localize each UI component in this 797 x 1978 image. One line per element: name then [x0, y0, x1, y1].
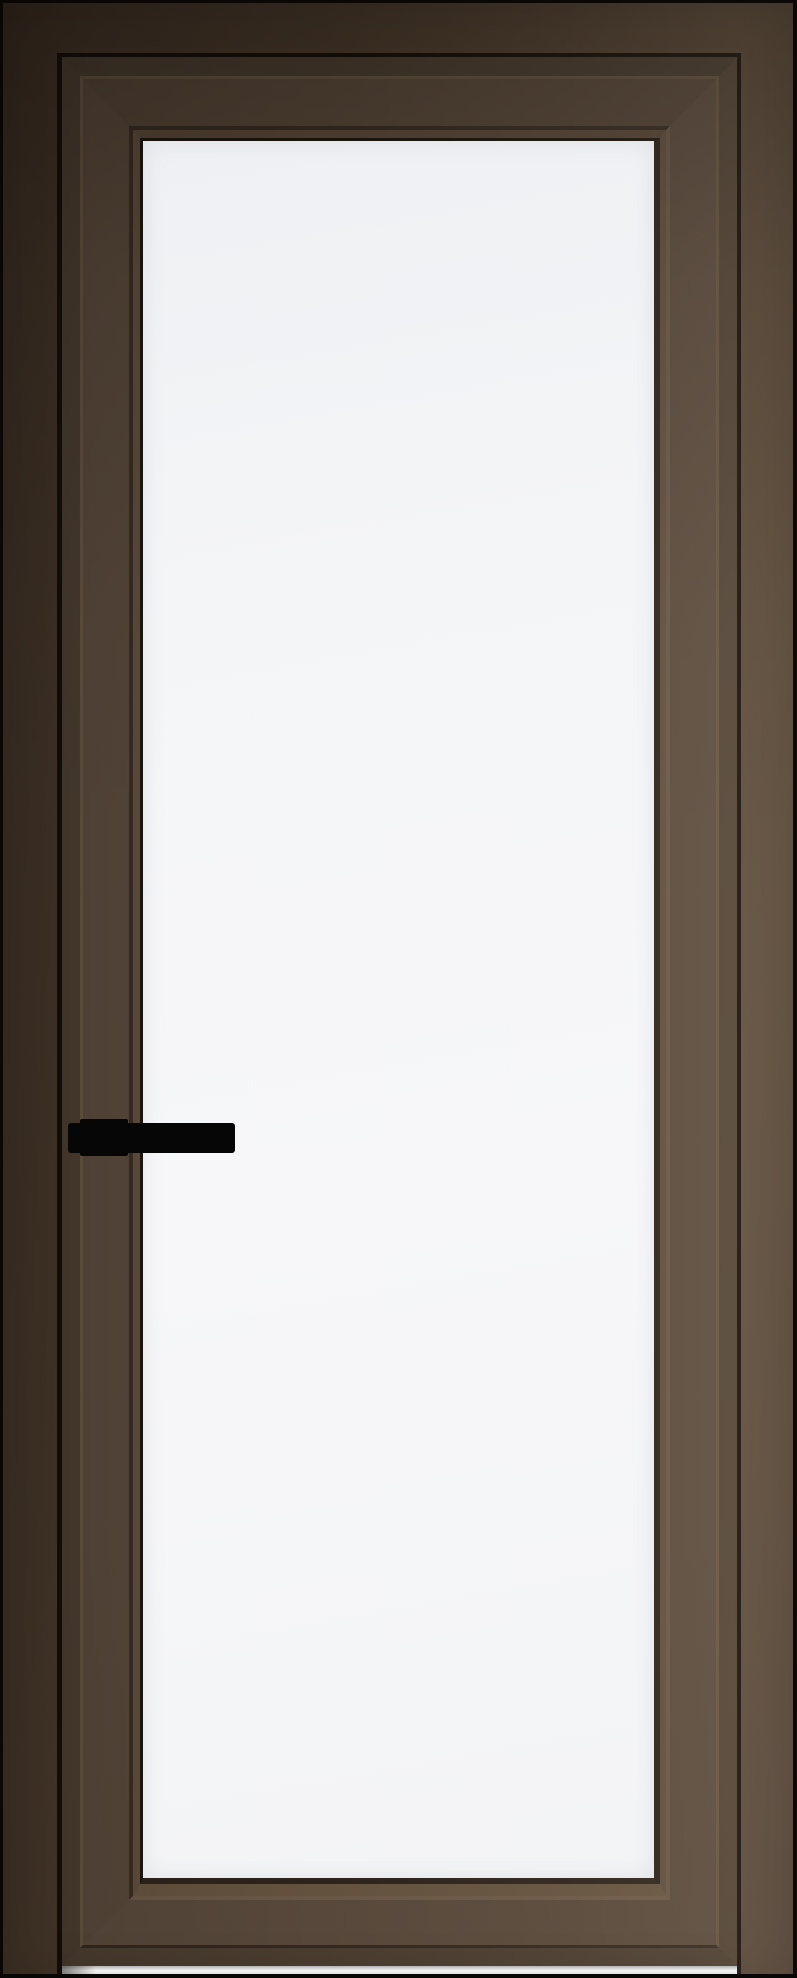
floor-base-line — [0, 1974, 797, 1978]
handle-lever-bar — [68, 1123, 235, 1153]
glass-panel — [143, 141, 654, 1878]
door-product-image — [0, 0, 797, 1978]
floor-gap-strip — [62, 1966, 737, 1974]
